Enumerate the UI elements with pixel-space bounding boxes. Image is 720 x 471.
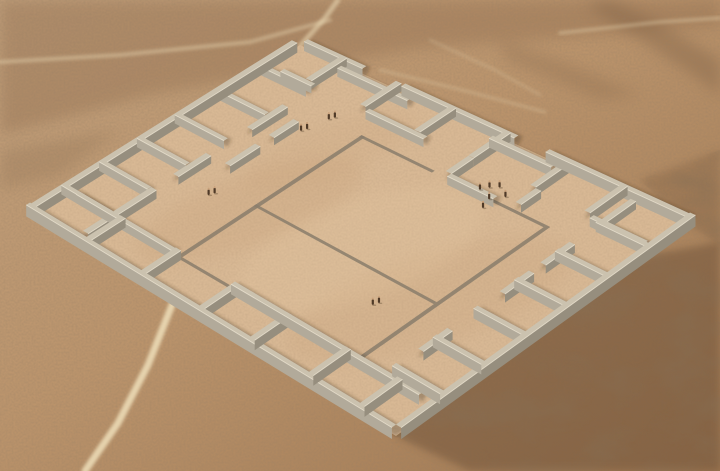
desert-compound-scene bbox=[0, 0, 720, 471]
human-figure bbox=[488, 182, 490, 187]
human-figure bbox=[488, 194, 490, 199]
aerial-photo-archaeological-compound bbox=[0, 0, 720, 471]
human-figure-head bbox=[482, 201, 484, 203]
human-figure bbox=[300, 125, 302, 130]
human-figure bbox=[504, 192, 506, 197]
human-figure-head bbox=[214, 186, 216, 188]
human-figure bbox=[328, 114, 330, 119]
human-figure-head bbox=[504, 190, 506, 192]
human-figure-head bbox=[499, 180, 501, 182]
human-figure bbox=[214, 188, 216, 193]
human-figure-head bbox=[328, 112, 330, 114]
human-figure bbox=[482, 202, 484, 207]
human-figure-head bbox=[208, 188, 210, 190]
human-figure-head bbox=[372, 298, 374, 300]
human-figure-head bbox=[488, 192, 490, 194]
human-figure bbox=[334, 112, 336, 117]
human-figure bbox=[498, 182, 500, 187]
human-figure-head bbox=[300, 124, 302, 126]
human-figure-head bbox=[334, 110, 336, 112]
human-figure-head bbox=[488, 180, 490, 182]
human-figure bbox=[208, 190, 210, 195]
human-figure bbox=[372, 299, 374, 304]
human-figure-head bbox=[479, 182, 481, 184]
human-figure bbox=[306, 124, 308, 129]
human-figure bbox=[479, 184, 481, 189]
human-figure bbox=[378, 297, 380, 302]
human-figure-head bbox=[378, 296, 380, 298]
human-figure-head bbox=[306, 122, 308, 124]
